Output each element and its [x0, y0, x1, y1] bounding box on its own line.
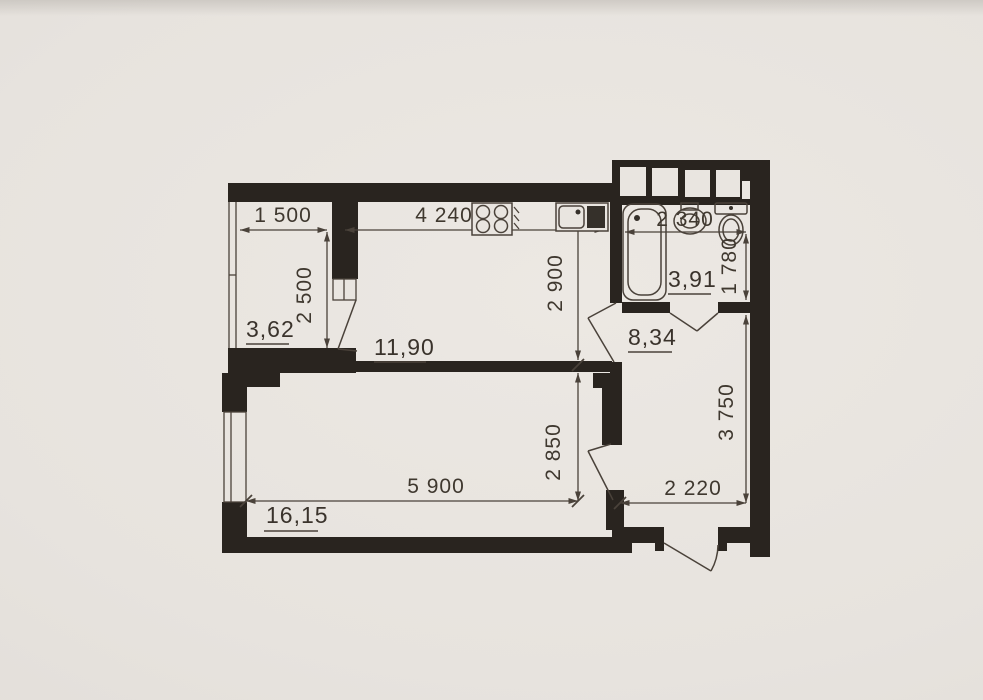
- living-area-value: 16,15: [266, 502, 329, 528]
- wall-bottom-hall-left: [612, 527, 664, 543]
- dim-label-living-width: 5 900: [407, 475, 465, 498]
- balcony-area-value: 3,62: [246, 316, 295, 342]
- room-label-kitchen: 11,90: [374, 334, 435, 362]
- room-label-hallway: 8,34: [628, 324, 677, 352]
- wall-balcony-divider: [332, 183, 358, 279]
- dim-label-balcony-width: 1 500: [254, 204, 312, 227]
- dim-label-kitchen-depth: 2 900: [544, 254, 567, 312]
- kitchen-sink-icon: [556, 203, 608, 231]
- dim-balcony-depth: 2 500: [293, 232, 327, 348]
- ventilation-shafts-icon: [612, 160, 770, 205]
- kitchen-area-value: 11,90: [374, 334, 435, 360]
- dim-label-bathroom-depth: 1 780: [718, 237, 741, 295]
- dim-label-living-depth: 2 850: [542, 423, 565, 481]
- entrance-door-icon: [664, 543, 718, 571]
- balcony-door-icon: [338, 300, 357, 351]
- entrance-jamb-left: [655, 543, 664, 551]
- stove-icon: [472, 203, 519, 235]
- wall-kitchen-bathroom: [610, 202, 622, 303]
- bathroom-door-icon: [670, 313, 718, 331]
- wall-right: [750, 165, 770, 557]
- wall-jamb-living-door: [606, 490, 624, 530]
- dim-hallway-width: 2 220: [620, 477, 746, 503]
- dim-label-hallway-depth: 3 750: [715, 383, 738, 441]
- dim-living-width: 5 900: [246, 475, 578, 501]
- dim-living-depth: 2 850: [542, 373, 578, 501]
- entrance-jamb-right: [718, 543, 727, 551]
- wall-bottom-living: [222, 537, 632, 553]
- room-label-bathroom: 3,91: [668, 266, 717, 294]
- floor-plan: 1 500 4 240 2 500 2 900 2 340 1 780 3 75…: [0, 0, 983, 700]
- bathroom-area-value: 3,91: [668, 266, 717, 292]
- wall-left-upper: [222, 373, 247, 412]
- living-room-window-icon: [224, 412, 246, 502]
- wall-left-lower: [222, 502, 247, 553]
- wall-bathroom-bottom-right: [718, 302, 750, 313]
- living-room-door-icon: [588, 444, 613, 500]
- dim-label-balcony-depth: 2 500: [293, 266, 316, 324]
- dim-balcony-width: 1 500: [240, 204, 327, 230]
- dim-label-bathroom-width: 2 340: [656, 208, 714, 231]
- wall-top: [228, 183, 620, 202]
- wall-bottom-hall-right: [718, 527, 770, 543]
- dim-label-hallway-width: 2 220: [664, 477, 722, 500]
- room-label-living: 16,15: [264, 502, 329, 531]
- floor-plan-photo: 1 500 4 240 2 500 2 900 2 340 1 780 3 75…: [0, 0, 983, 700]
- hallway-area-value: 8,34: [628, 324, 677, 350]
- dim-bathroom-depth: 1 780: [718, 234, 746, 300]
- wall-living-hallway: [602, 373, 622, 445]
- dim-label-kitchen-width: 4 240: [415, 204, 473, 227]
- room-label-balcony: 3,62: [246, 316, 295, 344]
- wall-bathroom-bottom-left: [622, 302, 670, 313]
- dim-hallway-depth: 3 750: [715, 315, 746, 503]
- kitchen-door-icon: [588, 303, 616, 362]
- wall-jamb-kitchen-door: [610, 362, 622, 373]
- balcony-window-icon: [229, 202, 236, 348]
- wall-kitchen-living-divider: [280, 361, 612, 372]
